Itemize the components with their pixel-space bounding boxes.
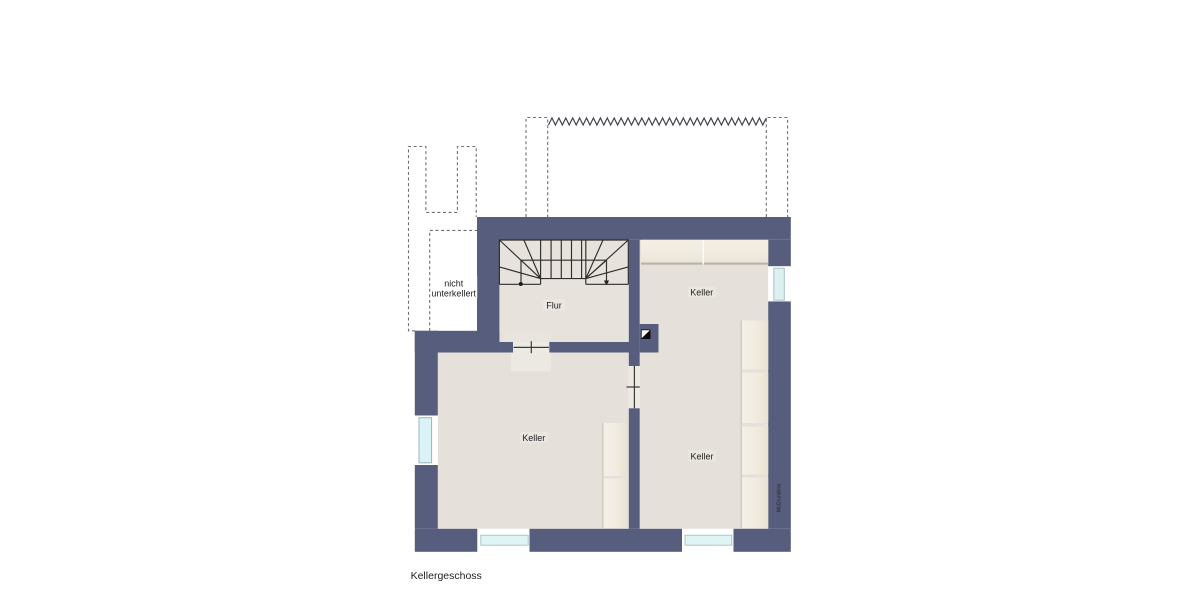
svg-text:Kellergeschoss: Kellergeschoss [411,570,482,582]
svg-text:unterkellert: unterkellert [431,288,476,298]
svg-text:Keller: Keller [690,287,713,297]
svg-text:McGrundriss: McGrundriss [777,483,783,512]
svg-text:Flur: Flur [546,301,562,311]
svg-text:nicht: nicht [444,278,464,288]
svg-text:Keller: Keller [522,433,545,443]
svg-text:Keller: Keller [690,451,713,461]
